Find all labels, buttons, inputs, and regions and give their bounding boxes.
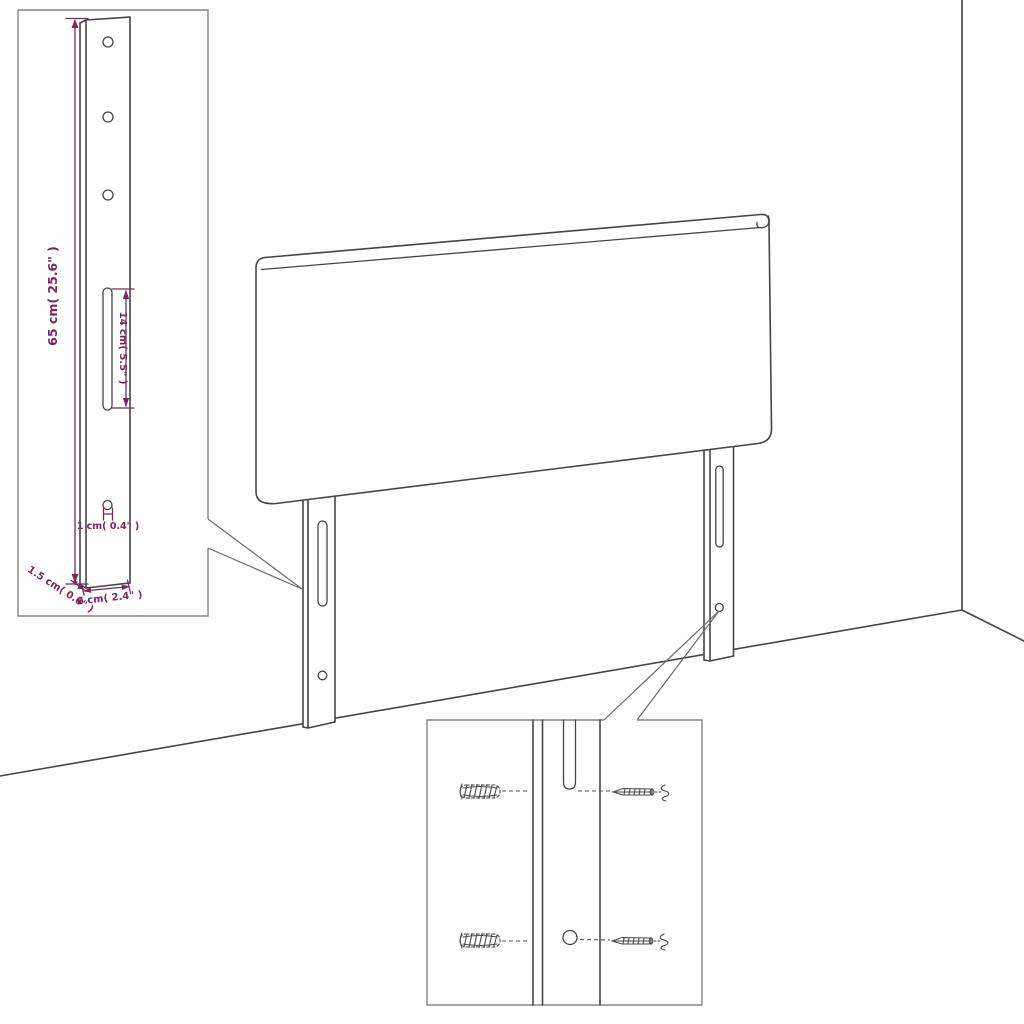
headboard-panel (256, 214, 772, 503)
hardware-leg-slot (564, 720, 576, 789)
label-leg-depth: 1.5 cm( 0.6" ) (25, 564, 95, 615)
inset-leg-drawing (80, 17, 130, 588)
label-hole-diameter: 1 cm( 0.4" ) (77, 521, 140, 532)
inset-hardware-box (427, 720, 702, 1005)
assembly-diagram-page: 65 cm( 25.6" ) 14 cm( 5.5" ) 1 cm( 0.4" … (0, 0, 1024, 1024)
inset-leg-hole-middle (103, 112, 113, 122)
leader-hole-to-hardware-inset-left (604, 611, 719, 720)
inset-leg-slot (103, 288, 112, 410)
hardware-leg-strip (533, 720, 600, 1005)
hardware-alignment-lines (502, 791, 611, 941)
inset-leg-hole-lower (103, 190, 113, 200)
right-mounting-leg (704, 436, 734, 661)
label-leg-width: 6 cm( 2.4" ) (76, 590, 143, 608)
inset-hardware-detail (427, 720, 702, 1005)
dimension-leg-depth: 1.5 cm( 0.6" ) (25, 564, 95, 615)
right-leg-face (704, 436, 734, 661)
left-mounting-leg (303, 488, 335, 728)
wall-anchor-top (460, 784, 500, 799)
hardware-leg-hole (563, 931, 577, 945)
headboard-front-face (256, 214, 772, 503)
label-slot-length: 14 cm( 5.5" ) (117, 312, 128, 385)
callout-leaders (208, 519, 719, 720)
label-leg-height: 65 cm( 25.6" ) (45, 246, 60, 346)
headboard-assembly-diagram: 65 cm( 25.6" ) 14 cm( 5.5" ) 1 cm( 0.4" … (0, 0, 1024, 1024)
screw-bottom (612, 934, 668, 950)
dimension-leg-height: 65 cm( 25.6" ) (45, 19, 88, 585)
inset-leg-hole-top (103, 37, 113, 47)
inset-leg-small-hole (103, 501, 112, 510)
floor-wall-line-right (962, 610, 1024, 641)
screw-top (613, 785, 669, 801)
leader-hole-to-hardware-inset-right (637, 611, 719, 720)
wall-anchor-bottom (460, 933, 500, 948)
floor-wall-line-left (0, 610, 962, 776)
inset-leg-dimensions: 65 cm( 25.6" ) 14 cm( 5.5" ) 1 cm( 0.4" … (18, 10, 208, 616)
